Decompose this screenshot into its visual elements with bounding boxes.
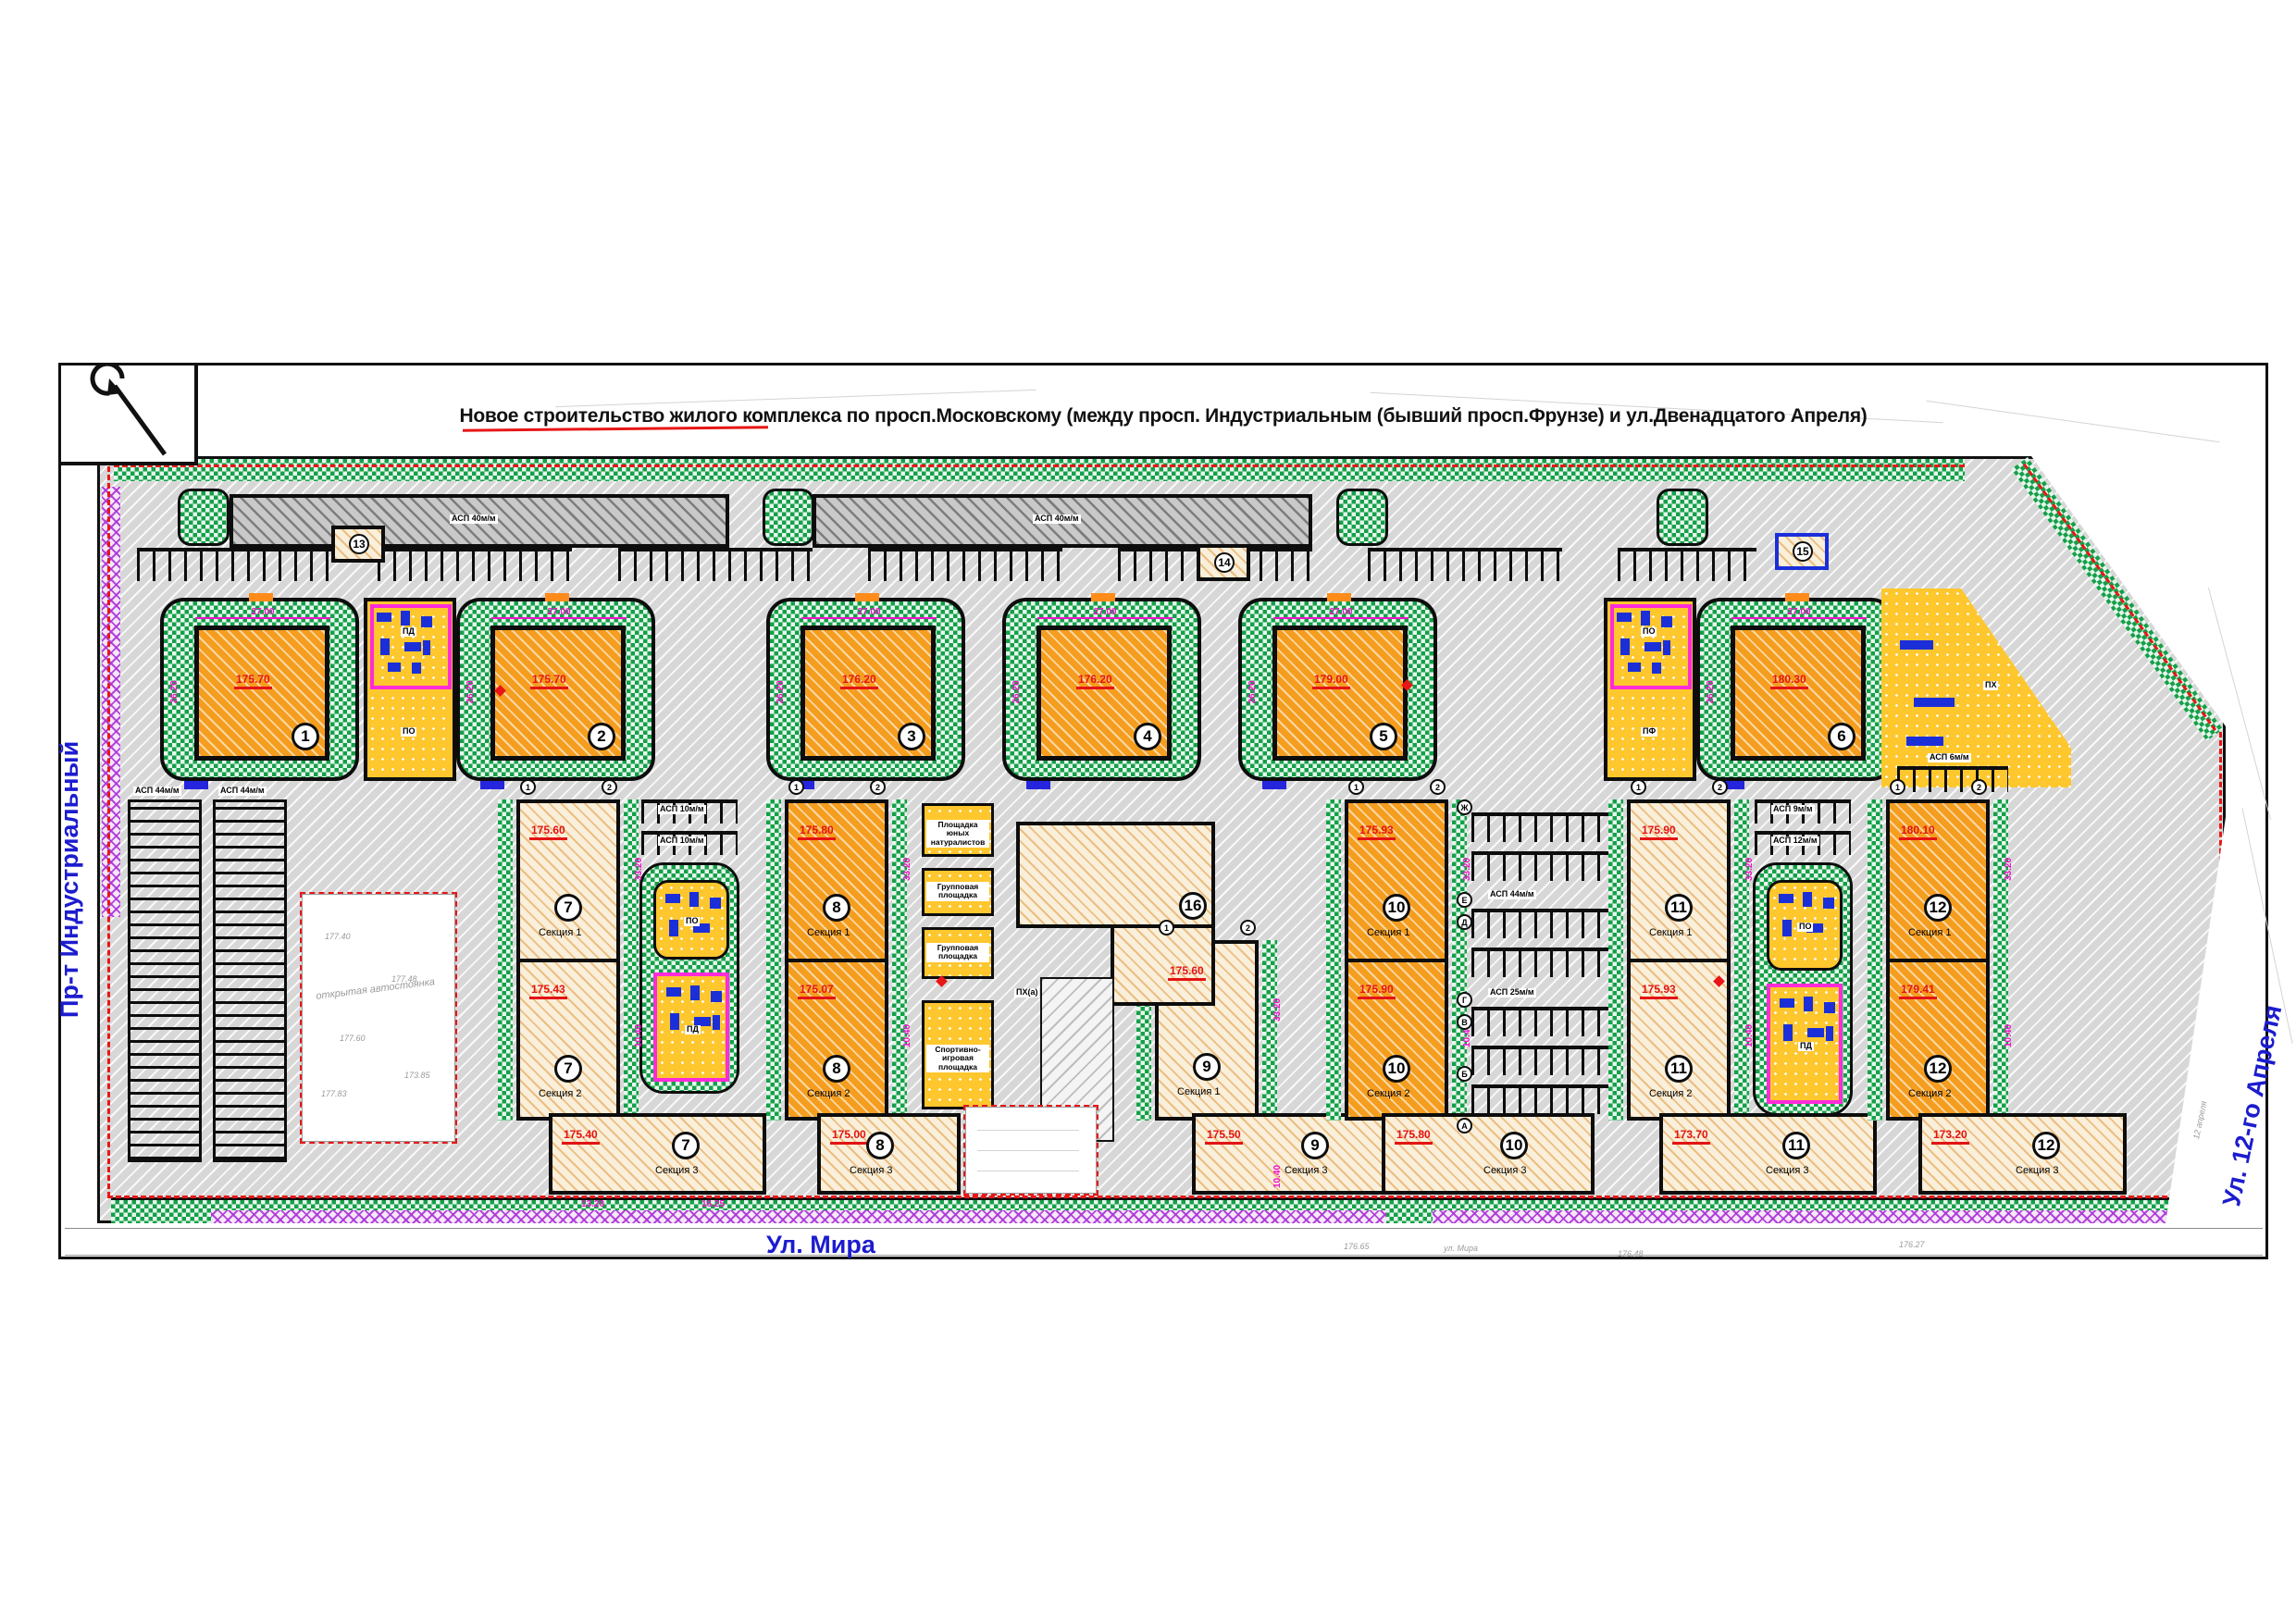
dimension-label: 33.20 xyxy=(1744,858,1755,881)
entrance-tab xyxy=(855,593,879,601)
section-label: Секция 3 xyxy=(2016,1165,2058,1176)
equipment-icon xyxy=(1900,640,1933,650)
dimension-label: 33.20 xyxy=(1462,858,1472,881)
excluded-building xyxy=(965,1107,1097,1194)
elevation-mark: 175.80 xyxy=(1395,1128,1433,1145)
street-edge xyxy=(65,1255,2263,1256)
equipment-icon xyxy=(713,1015,720,1030)
dimension-label: 27.00 xyxy=(1037,607,1173,619)
playground-label: ПД xyxy=(401,627,416,637)
sketch-line xyxy=(977,1171,1079,1171)
entrance-tab xyxy=(1091,593,1115,601)
sketch-line xyxy=(977,1130,1079,1131)
tower-building: 179.005 xyxy=(1272,626,1408,761)
elevation-mark: 175.70 xyxy=(234,673,272,689)
parking-label: АСП 10м/м xyxy=(658,805,706,814)
purple-strip xyxy=(1433,1210,2228,1225)
equipment-icon xyxy=(1617,613,1632,622)
equipment-icon xyxy=(380,638,390,655)
section-label: Секция 2 xyxy=(807,1088,850,1099)
axis-marker: 2 xyxy=(870,779,886,795)
dimension-label: 10.40 xyxy=(1272,1165,1283,1188)
elevation-mark: 175.60 xyxy=(529,824,567,840)
parking-label: АСП 44м/м xyxy=(1488,890,1536,899)
elevation-mark: 179.41 xyxy=(1899,983,1937,999)
building-number: 10 xyxy=(1500,1132,1528,1159)
axis-marker: 1 xyxy=(1631,779,1646,795)
survey-mark: 177.48 xyxy=(391,974,417,984)
green-island xyxy=(178,489,230,546)
elevation-mark: 175.93 xyxy=(1358,824,1396,840)
utility-yard xyxy=(1881,588,2071,787)
tower-courtyard: 27.0026.20176.204 xyxy=(1002,598,1201,781)
dimension-label: 33.20 xyxy=(634,858,644,881)
equipment-icon xyxy=(388,663,401,672)
parking-row xyxy=(1471,1046,1608,1075)
elevation-mark: 175.90 xyxy=(1640,824,1678,840)
parking-label: АСП 40м/м xyxy=(1033,514,1081,524)
equipment-icon xyxy=(1783,1024,1793,1041)
building-number: 10 xyxy=(1383,894,1410,922)
courtyard-strip xyxy=(766,799,781,1121)
section-label: Секция 1 xyxy=(1177,1086,1220,1097)
street-edge xyxy=(65,1228,2263,1229)
section-label: Секция 1 xyxy=(1367,927,1409,938)
building-section: 175.407Секция 3 xyxy=(549,1113,766,1195)
equipment-icon xyxy=(1782,920,1792,936)
named-playground: Спортивно-игровая площадка xyxy=(922,1000,994,1109)
purple-strip xyxy=(102,487,120,917)
building-column: 175.9310Секция 1175.9010Секция 2 xyxy=(1345,799,1448,1121)
building-section: 179.4112Секция 2 xyxy=(1890,959,1986,1116)
axis-marker: В xyxy=(1457,1014,1472,1030)
elevation-mark: 173.70 xyxy=(1672,1128,1710,1145)
building-section: 173.7011Секция 3 xyxy=(1659,1113,1877,1195)
parking-row xyxy=(1368,548,1562,581)
section-label: Секция 3 xyxy=(1766,1165,1808,1176)
tower-number: 4 xyxy=(1134,723,1161,750)
section-label: Секция 2 xyxy=(539,1088,581,1099)
tower-building: 176.204 xyxy=(1036,626,1172,761)
building-section: 173.2012Секция 3 xyxy=(1918,1113,2127,1195)
entrance-tab xyxy=(545,593,569,601)
equipment-icon xyxy=(710,898,721,909)
axis-marker: 1 xyxy=(1890,779,1905,795)
axis-marker: 2 xyxy=(602,779,617,795)
axis-marker: 1 xyxy=(788,779,804,795)
elevation-mark: 175.70 xyxy=(530,673,568,689)
building-section: 175.008Секция 3 xyxy=(817,1113,961,1195)
playground: ПО xyxy=(653,880,729,960)
dimension-label: 10.40 xyxy=(902,1024,912,1047)
elevation-mark: 173.20 xyxy=(1931,1128,1969,1145)
courtyard-strip xyxy=(1262,940,1277,1121)
dimension-label: 13.20 xyxy=(581,1199,604,1209)
dimension-label: 16.25 xyxy=(701,1199,725,1209)
section-label: Секция 1 xyxy=(1908,927,1951,938)
parking-row xyxy=(1471,851,1608,881)
dimension-label: 27.00 xyxy=(1273,607,1409,619)
parking-row xyxy=(618,548,813,581)
section-label: Секция 1 xyxy=(1649,927,1692,938)
survey-mark: 177.60 xyxy=(340,1034,366,1043)
dimension-label: 26.20 xyxy=(465,627,477,757)
open-parking-label: открытая автостоянка xyxy=(316,976,436,1002)
parking-label: АСП 40м/м xyxy=(450,514,498,524)
open-parking-area: открытая автостоянка177.40177.48177.6017… xyxy=(302,894,455,1142)
elevation-mark: 176.20 xyxy=(840,673,878,689)
building-section: 175.437Секция 2 xyxy=(520,959,616,1116)
dimension-label: 10.40 xyxy=(1744,1024,1755,1047)
building-number: 12 xyxy=(1924,894,1952,922)
playground-label: ПО xyxy=(1641,627,1657,637)
courtyard-strip xyxy=(1734,799,1749,1121)
equipment-icon xyxy=(1780,998,1794,1008)
playground-label: ПХ(а) xyxy=(1014,988,1039,997)
dimension-label: 27.00 xyxy=(1731,607,1867,619)
plan-title: Новое строительство жилого комплекса по … xyxy=(58,405,2268,427)
equipment-icon xyxy=(401,611,410,626)
tower-building: 175.701 xyxy=(194,626,329,761)
street-label-bottom-small: ул. Мира xyxy=(1444,1244,1478,1253)
equipment-icon xyxy=(1652,663,1661,674)
kindergarten-number: 16 xyxy=(1179,892,1207,920)
axis-marker: 1 xyxy=(1159,920,1174,935)
courtyard-strip xyxy=(1608,799,1623,1121)
elevation-mark: 175.60 xyxy=(1168,964,1206,981)
parking-row xyxy=(128,799,202,1162)
building-section: 180.1012Секция 1 xyxy=(1890,803,1986,959)
building-column: 180.1012Секция 1179.4112Секция 2 xyxy=(1886,799,1990,1121)
dimension-label: 26.20 xyxy=(169,627,180,757)
courtyard: ПОПД xyxy=(1753,862,1853,1116)
parking-row xyxy=(1471,909,1608,938)
axis-marker: Е xyxy=(1457,892,1472,908)
building-section: 175.509Секция 3 xyxy=(1192,1113,1396,1195)
named-playground: Площадка юных натуралистов xyxy=(922,803,994,857)
building-number: 7 xyxy=(672,1132,700,1159)
tp-box: 13 xyxy=(331,526,385,563)
tp-box: 15 xyxy=(1775,533,1829,570)
building-column: 175.9011Секция 1175.9311Секция 2 xyxy=(1627,799,1731,1121)
equipment-icon xyxy=(1663,640,1670,655)
building-number: 7 xyxy=(554,1055,582,1083)
building-number: 11 xyxy=(1665,894,1693,922)
sketch-line xyxy=(977,1150,1079,1151)
dimension-label: 10.40 xyxy=(634,1024,644,1047)
equipment-icon xyxy=(665,894,680,903)
elevation-mark: 175.07 xyxy=(798,983,836,999)
playground: ПОПФ xyxy=(1604,598,1696,781)
building-section: 175.9011Секция 1 xyxy=(1631,803,1727,959)
section-label: Секция 3 xyxy=(850,1165,892,1176)
equipment-icon xyxy=(711,991,722,1002)
building-section: 175.808Секция 1 xyxy=(788,803,885,959)
section-label: Секция 2 xyxy=(1908,1088,1951,1099)
entrance-tab xyxy=(184,781,208,789)
equipment-icon xyxy=(404,642,421,651)
survey-mark: 177.83 xyxy=(321,1089,347,1098)
tower-number: 5 xyxy=(1370,723,1397,750)
dimension-label: 26.20 xyxy=(1011,627,1023,757)
building-number: 8 xyxy=(823,894,850,922)
equipment-icon xyxy=(1914,698,1955,707)
equipment-icon xyxy=(669,920,678,936)
green-island xyxy=(1657,489,1708,546)
parking-row xyxy=(1471,812,1608,842)
elevation-mark: 175.80 xyxy=(798,824,836,840)
parking-row xyxy=(1897,766,2008,792)
building-number: 11 xyxy=(1665,1055,1693,1083)
axis-marker: 2 xyxy=(1712,779,1728,795)
playground-label: ПД xyxy=(1798,1042,1814,1051)
section-label: Секция 3 xyxy=(1285,1165,1327,1176)
dimension-label: 26.20 xyxy=(1247,627,1259,757)
tower-number: 1 xyxy=(292,723,319,750)
elevation-mark: 175.50 xyxy=(1205,1128,1243,1145)
building-number: 8 xyxy=(866,1132,894,1159)
building-number: 11 xyxy=(1782,1132,1810,1159)
dimension-label: 33.20 xyxy=(2004,858,2014,881)
courtyard-strip xyxy=(1326,799,1341,1121)
courtyard-strip xyxy=(1868,799,1882,1121)
parking-label: АСП 25м/м xyxy=(1488,988,1536,997)
equipment-icon xyxy=(670,1013,679,1030)
building-section: 175.078Секция 2 xyxy=(788,959,885,1116)
axis-marker: 2 xyxy=(1430,779,1446,795)
axis-marker: Ж xyxy=(1457,799,1472,815)
equipment-icon xyxy=(1807,1028,1824,1037)
playground-label: ПО xyxy=(684,917,700,926)
parking-label: АСП 10м/м xyxy=(658,836,706,846)
building-section: 175.9310Секция 1 xyxy=(1348,803,1445,959)
section-label: Секция 2 xyxy=(1367,1088,1409,1099)
equipment-icon xyxy=(1641,611,1650,626)
street-label-left: Пр-т Индустриальный xyxy=(56,741,84,1018)
parking-row xyxy=(137,548,331,581)
parking-row xyxy=(213,799,287,1162)
equipment-icon xyxy=(690,985,700,1000)
tower-building: 175.702 xyxy=(490,626,626,761)
parking-label: АСП 44м/м xyxy=(133,787,181,796)
building-number: 12 xyxy=(2032,1132,2060,1159)
tower-number: 3 xyxy=(898,723,925,750)
playground-label: ПО xyxy=(1797,923,1813,932)
axis-marker: Д xyxy=(1457,914,1472,930)
playground: ПД xyxy=(1767,984,1843,1104)
entrance-tab xyxy=(1785,593,1809,601)
dimension-label: 10.40 xyxy=(2004,1024,2014,1047)
building-number: 9 xyxy=(1301,1132,1329,1159)
green-island xyxy=(763,489,814,546)
named-playground: Групповая площадка xyxy=(922,868,994,916)
section-label: Секция 3 xyxy=(655,1165,698,1176)
elevation-mark: 180.30 xyxy=(1770,673,1808,689)
courtyard-strip xyxy=(1993,799,2008,1121)
equipment-icon xyxy=(1826,1026,1833,1041)
parking-row xyxy=(868,548,1062,581)
axis-marker: 1 xyxy=(520,779,536,795)
named-playground-label: Площадка юных натуралистов xyxy=(926,820,989,848)
parking-row xyxy=(1471,1084,1608,1114)
equipment-icon xyxy=(423,640,430,655)
boundary-line xyxy=(107,1196,2217,1198)
playground: ПДПО xyxy=(364,598,456,781)
dimension-label: 33.20 xyxy=(902,858,912,881)
section-label: Секция 2 xyxy=(1649,1088,1692,1099)
tp-number: 14 xyxy=(1214,552,1235,573)
equipment-icon xyxy=(1628,663,1641,672)
street-label-bottom: Ул. Мира xyxy=(766,1231,875,1259)
entrance-tab xyxy=(1262,781,1286,789)
tp-number: 13 xyxy=(349,534,369,554)
courtyard-strip xyxy=(892,799,907,1121)
building-column: 175.607Секция 1175.437Секция 2 xyxy=(516,799,620,1121)
axis-marker: Г xyxy=(1457,992,1472,1008)
elevation-mark: 175.93 xyxy=(1640,983,1678,999)
playground: ПО xyxy=(1767,880,1843,971)
tower-courtyard: 27.0026.20175.701 xyxy=(160,598,359,781)
equipment-icon xyxy=(1804,997,1813,1011)
tower-courtyard: 27.0026.20175.702 xyxy=(456,598,655,781)
equipment-icon xyxy=(1644,642,1661,651)
equipment-icon xyxy=(421,616,432,627)
building-number: 8 xyxy=(823,1055,850,1083)
playground-label: ПХ xyxy=(1983,681,1998,690)
elevation-mark: 175.43 xyxy=(529,983,567,999)
parking-label: АСП 9м/м xyxy=(1771,805,1815,814)
axis-marker: 2 xyxy=(1240,920,1256,935)
courtyard: ПОПД xyxy=(639,862,739,1094)
parking-label: АСП 44м/м xyxy=(218,787,267,796)
courtyard-strip xyxy=(498,799,513,1121)
elevation-mark: 176.20 xyxy=(1076,673,1114,689)
site-area: АСП 40м/мАСП 40м/м27.0026.20175.70127.00… xyxy=(97,456,2226,1223)
playground-label: ПД xyxy=(685,1025,701,1035)
tp-box: 14 xyxy=(1197,544,1250,581)
survey-mark: 176.27 xyxy=(1899,1240,1925,1249)
tower-courtyard: 27.0026.20180.306 xyxy=(1696,598,1895,781)
named-playground: Групповая площадка xyxy=(922,927,994,979)
axis-marker: А xyxy=(1457,1118,1472,1134)
section-label: Секция 1 xyxy=(807,927,850,938)
courtyard-strip xyxy=(624,799,639,1121)
equipment-icon xyxy=(1661,616,1672,627)
green-island xyxy=(1336,489,1388,546)
parking-row xyxy=(378,548,572,581)
dimension-label: 26.20 xyxy=(776,627,787,757)
elevation-mark: 175.90 xyxy=(1358,983,1396,999)
tower-building: 176.203 xyxy=(800,626,936,761)
elevation-mark: 180.10 xyxy=(1899,824,1937,840)
entrance-tab xyxy=(1327,593,1351,601)
parking-row xyxy=(1471,1007,1608,1036)
building-section: 175.9311Секция 2 xyxy=(1631,959,1727,1116)
entrance-tab xyxy=(249,593,273,601)
dimension-label: 26.20 xyxy=(1706,627,1717,757)
entrance-tab xyxy=(480,781,504,789)
equipment-icon xyxy=(1620,638,1630,655)
survey-mark: 177.40 xyxy=(325,932,351,941)
building-section: 175.607Секция 1 xyxy=(520,803,616,959)
tower-courtyard: 27.0026.20176.203 xyxy=(766,598,965,781)
parking-row xyxy=(1471,948,1608,977)
playground-label: ПФ xyxy=(1641,727,1657,737)
tower-number: 6 xyxy=(1828,723,1855,750)
boundary-line xyxy=(107,466,110,1197)
equipment-icon xyxy=(1779,894,1793,903)
building-column: 175.808Секция 1175.078Секция 2 xyxy=(785,799,888,1121)
tp-number: 15 xyxy=(1793,541,1813,562)
section-label: Секция 1 xyxy=(539,927,581,938)
equipment-icon xyxy=(1824,1002,1835,1013)
equipment-icon xyxy=(412,663,421,674)
tower-number: 2 xyxy=(588,723,615,750)
parking-row xyxy=(1618,548,1756,581)
equipment-icon xyxy=(1906,737,1943,746)
parking-label: АСП 12м/м xyxy=(1771,836,1819,846)
building-number: 10 xyxy=(1383,1055,1410,1083)
equipment-icon xyxy=(666,987,681,997)
green-strip xyxy=(114,459,1965,481)
parking-label: АСП 6м/м xyxy=(1928,753,1971,762)
named-playground-label: Групповая площадка xyxy=(926,882,989,901)
building-section: 175.9010Секция 2 xyxy=(1348,959,1445,1116)
survey-mark: 176.65 xyxy=(1344,1242,1370,1251)
section-label: Секция 3 xyxy=(1483,1165,1526,1176)
dimension-label: 27.00 xyxy=(491,607,627,619)
axis-marker: 1 xyxy=(1348,779,1364,795)
building-number: 7 xyxy=(554,894,582,922)
equipment-icon xyxy=(689,892,699,907)
building-number: 12 xyxy=(1924,1055,1952,1083)
survey-mark: 173.85 xyxy=(404,1071,430,1080)
playground-label: ПО xyxy=(401,727,416,737)
survey-mark: 176.48 xyxy=(1618,1249,1644,1258)
entrance-tab xyxy=(1026,781,1050,789)
axis-marker: Б xyxy=(1457,1066,1472,1082)
elevation-mark: 179.00 xyxy=(1312,673,1350,689)
named-playground-label: Групповая площадка xyxy=(926,943,989,962)
playground: ПД xyxy=(653,973,729,1082)
dimension-label: 27.00 xyxy=(195,607,330,619)
equipment-icon xyxy=(377,613,391,622)
building-number: 9 xyxy=(1193,1053,1221,1081)
purple-strip xyxy=(211,1210,1386,1225)
elevation-mark: 175.40 xyxy=(562,1128,600,1145)
elevation-mark: 175.00 xyxy=(830,1128,868,1145)
named-playground-label: Спортивно-игровая площадка xyxy=(926,1045,989,1072)
dimension-label: 33.20 xyxy=(1272,998,1283,1022)
equipment-icon xyxy=(1823,898,1834,909)
boundary-line xyxy=(114,465,1965,467)
dimension-label: 27.00 xyxy=(801,607,937,619)
equipment-icon xyxy=(1803,892,1812,907)
building-section: 175.8010Секция 3 xyxy=(1382,1113,1595,1195)
tower-building: 180.306 xyxy=(1731,626,1866,761)
axis-marker: 2 xyxy=(1971,779,1987,795)
